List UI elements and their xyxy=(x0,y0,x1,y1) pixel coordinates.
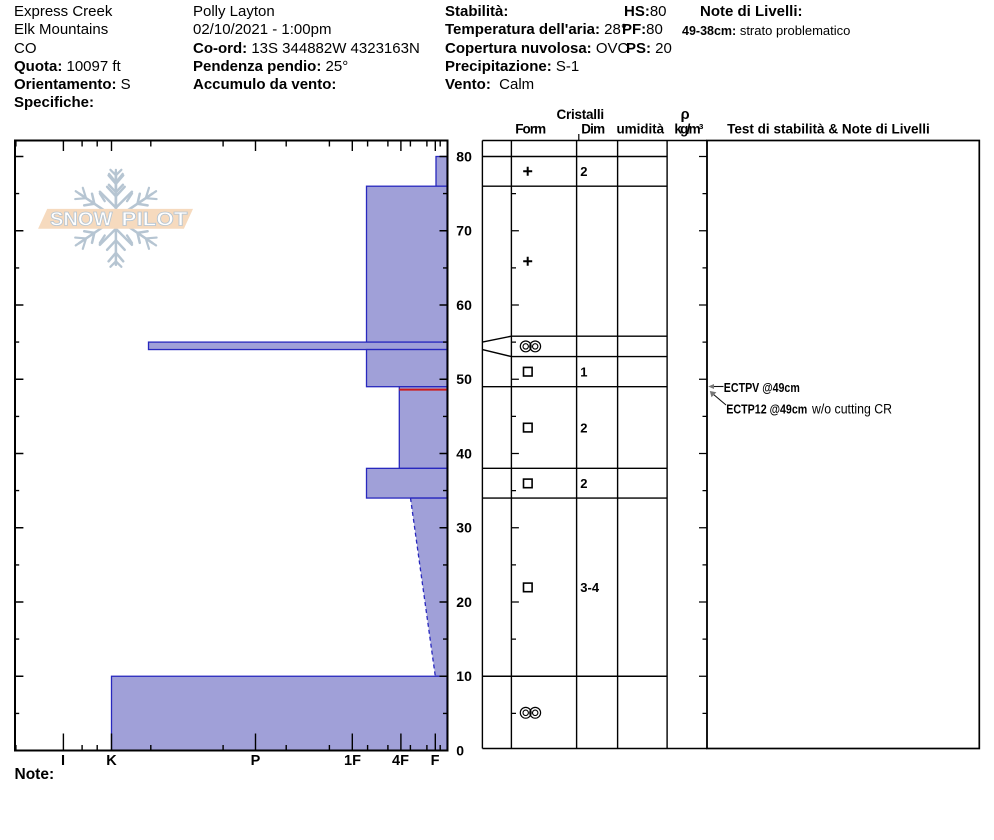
svg-text:2: 2 xyxy=(580,420,587,435)
svg-text:2: 2 xyxy=(580,164,587,179)
svg-text:kg/m³: kg/m³ xyxy=(674,122,704,137)
svg-text:10: 10 xyxy=(456,668,472,684)
svg-text:SNOW: SNOW xyxy=(50,209,113,231)
svg-text:F: F xyxy=(431,753,440,769)
svg-text:3-4: 3-4 xyxy=(580,580,600,595)
svg-text:P: P xyxy=(251,753,261,769)
svg-text:4F: 4F xyxy=(392,753,409,769)
svg-text:K: K xyxy=(106,753,117,769)
svg-text:2: 2 xyxy=(580,476,587,491)
svg-text:0: 0 xyxy=(456,742,464,758)
svg-text:I: I xyxy=(61,753,65,769)
svg-text:80: 80 xyxy=(456,148,472,164)
svg-text:w/o cutting CR: w/o cutting CR xyxy=(811,402,892,417)
svg-text:PILOT: PILOT xyxy=(122,209,188,231)
svg-text:Cristalli: Cristalli xyxy=(557,107,605,122)
svg-text:ECTP12 @49cm: ECTP12 @49cm xyxy=(726,402,807,416)
svg-text:Note:: Note: xyxy=(15,766,55,783)
svg-text:Dim: Dim xyxy=(581,122,605,137)
svg-text:Test di stabilità & Note di Li: Test di stabilità & Note di Livelli xyxy=(727,122,930,137)
svg-text:60: 60 xyxy=(456,297,472,313)
svg-text:1F: 1F xyxy=(344,753,361,769)
svg-text:40: 40 xyxy=(456,445,472,461)
svg-text:30: 30 xyxy=(456,520,472,536)
svg-text:Form: Form xyxy=(515,122,546,137)
svg-text:1: 1 xyxy=(580,364,587,379)
svg-text:20: 20 xyxy=(456,594,472,610)
svg-text:50: 50 xyxy=(456,371,472,387)
svg-text:umidità: umidità xyxy=(617,122,665,137)
svg-text:70: 70 xyxy=(456,223,472,239)
svg-text:ECTPV @49cm: ECTPV @49cm xyxy=(724,381,800,395)
